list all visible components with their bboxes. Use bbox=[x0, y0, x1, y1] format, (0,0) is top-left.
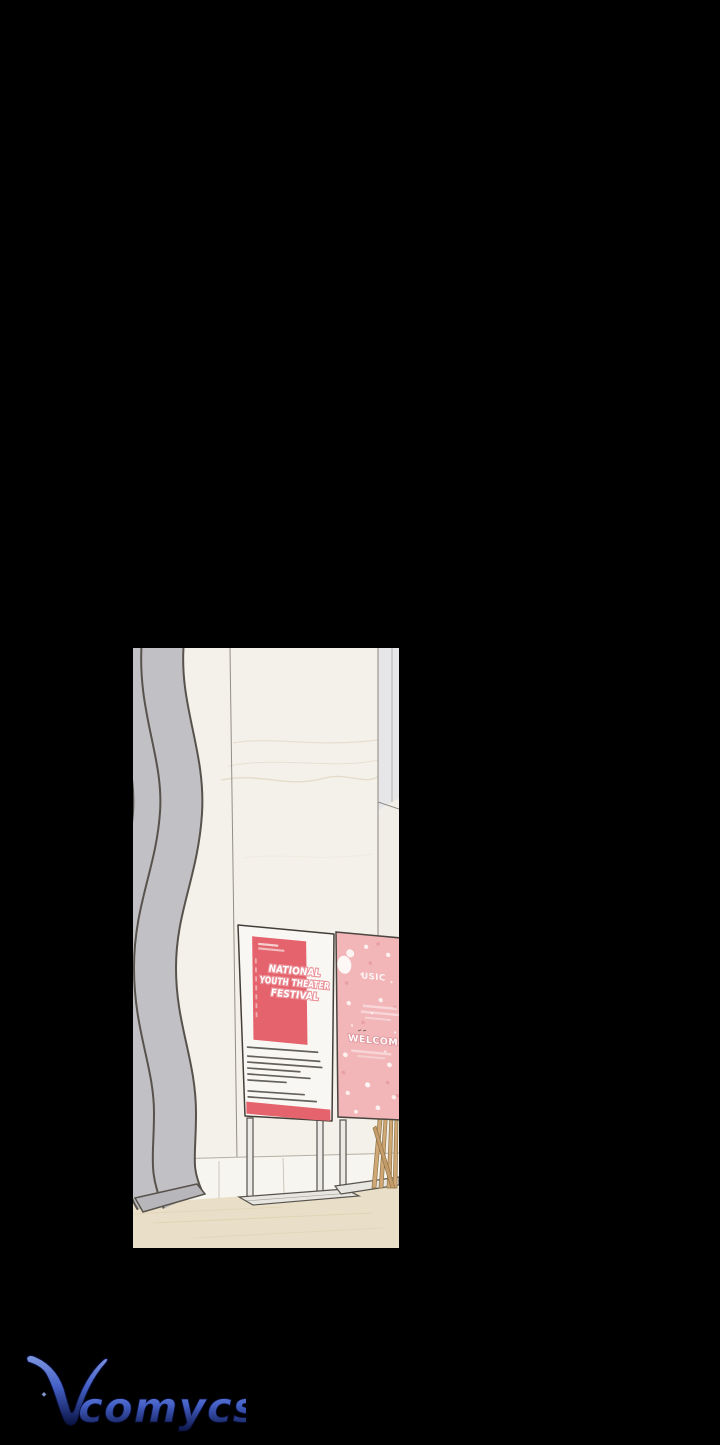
sculpture-band-main bbox=[155, 648, 183, 1200]
comic-page: NATIONAL YOUTH THEATER FESTIVAL bbox=[0, 0, 720, 1445]
watermark-diamond-icon bbox=[42, 1392, 47, 1397]
welcome-sign: USIC WELCOM bbox=[336, 932, 399, 1120]
watermark-text: comycs bbox=[78, 1383, 246, 1432]
watermark-logo: comycs bbox=[14, 1348, 246, 1440]
festival-sign-board: NATIONAL YOUTH THEATER FESTIVAL bbox=[238, 925, 334, 1122]
comic-panel: NATIONAL YOUTH THEATER FESTIVAL bbox=[133, 648, 399, 1248]
